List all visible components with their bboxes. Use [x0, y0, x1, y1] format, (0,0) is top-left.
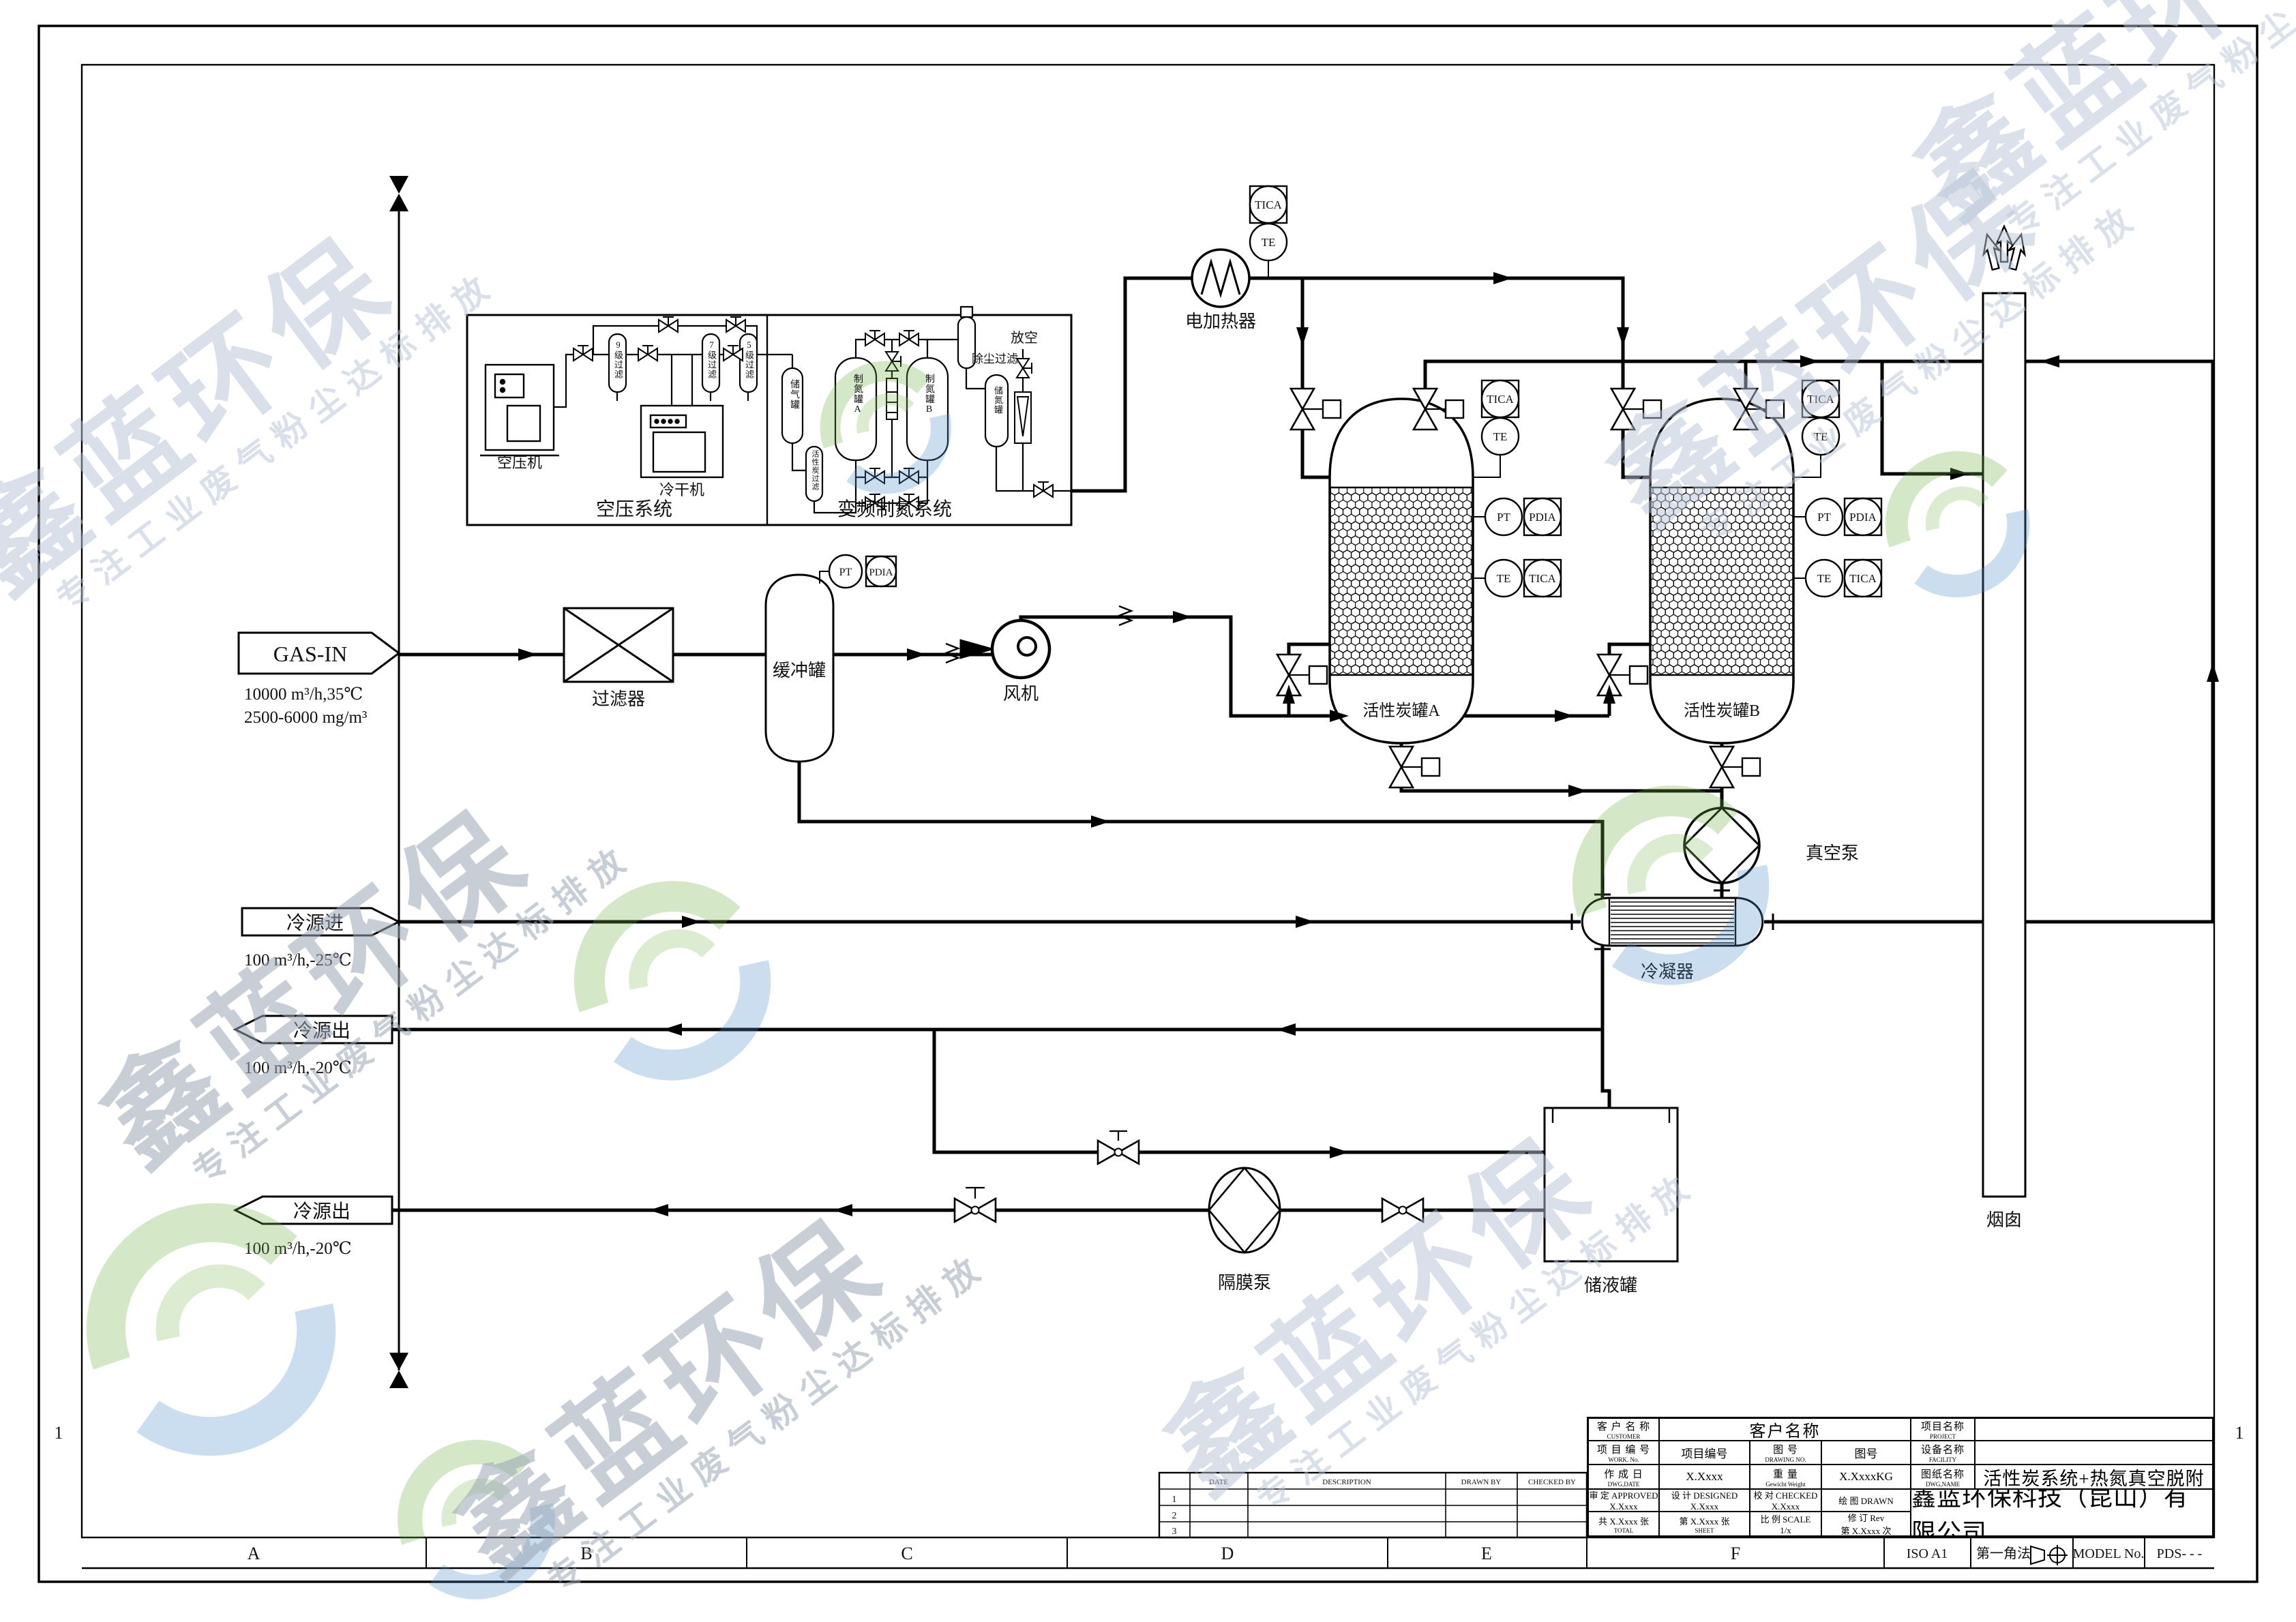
model-no-value: PDS- - -: [2157, 1546, 2203, 1561]
liquid-tank-label: 储液罐: [1584, 1276, 1637, 1295]
n2a-label: 制氮罐A: [850, 374, 864, 415]
stream-labels: GAS-IN 10000 m³/h,35℃ 2500-6000 mg/m³ 冷源…: [235, 633, 399, 1258]
rev-row-2: 2: [1172, 1511, 1177, 1521]
pid-diagram: A B C D E F 1 1 ISO A1 第一角法 MODEL No. PD…: [0, 0, 2296, 1622]
dust-filter-cap: [961, 307, 972, 317]
tank-a-te-top: TE: [1493, 430, 1508, 443]
grid-col-c: C: [901, 1544, 912, 1563]
fan-label: 风机: [1003, 684, 1039, 704]
buffer-label: 缓冲罐: [773, 661, 826, 680]
n2-buffer-label: 储氮罐: [992, 386, 1004, 415]
first-angle-projection-icon: [2031, 1545, 2068, 1565]
stack-label: 烟囱: [1986, 1210, 2022, 1230]
filter9-label: 9级过滤: [612, 340, 625, 379]
tb-company: 鑫蓝环保科技（昆山）有限公司: [1911, 1490, 2212, 1535]
tb-dwgname-value: 活性炭系统+热氮真空脱附: [1976, 1465, 2212, 1490]
tb-project-label: 项目名称PROJECT: [1911, 1419, 1976, 1441]
air-system-label: 空压系统: [596, 498, 672, 520]
tank-a-tica-mid: TICA: [1529, 572, 1556, 585]
tb-dwgno-value: 图号: [1822, 1441, 1911, 1465]
tb-customer-label: 客 户 名 称CUSTOMER: [1589, 1419, 1660, 1441]
tank-b-tica-top: TICA: [1807, 393, 1834, 406]
gas-in-spec-1: 10000 m³/h,35℃: [244, 685, 363, 704]
tank-b-pt: PT: [1817, 511, 1831, 524]
filter-label: 过滤器: [592, 689, 645, 709]
tank-b-label: 活性炭罐B: [1684, 702, 1760, 720]
diaphragm-pump: [1209, 1168, 1280, 1252]
pid-drawing-sheet: A B C D E F 1 1 ISO A1 第一角法 MODEL No. PD…: [0, 0, 2296, 1622]
tb-work-label: 项 目 编 号WORK. No.: [1589, 1441, 1660, 1465]
grid-col-b: B: [580, 1544, 592, 1563]
tank-a-te-mid: TE: [1497, 572, 1511, 585]
air-tank-label: 储气罐: [787, 379, 801, 410]
tb-dwgno-label: 图 号DRAWING NO.: [1750, 1441, 1822, 1465]
cold-out2-label: 冷源出: [293, 1201, 351, 1222]
tb-weight-value: X.XxxxKG: [1822, 1465, 1911, 1490]
refrigerated-dryer: [641, 406, 723, 477]
gas-in-label: GAS-IN: [273, 642, 347, 666]
buffer-pdia: PDIA: [869, 567, 893, 578]
gas-in-spec-2: 2500-6000 mg/m³: [244, 708, 368, 727]
tb-dwgname-label: 图纸名称DWG,NAME: [1911, 1465, 1976, 1490]
buffer-pt: PT: [839, 567, 852, 578]
model-no-label: MODEL No.: [2073, 1546, 2145, 1561]
cold-in-spec: 100 m³/h,-25℃: [244, 951, 352, 970]
revision-table-text: DATE DESCRIPTION DRAWN BY CHECKED BY 1 2…: [1172, 1478, 1577, 1537]
tank-b-tica-mid: TICA: [1849, 572, 1877, 585]
tb-customer-value: 客户名称: [1660, 1419, 1911, 1441]
tb-date-value: X.Xxxx: [1660, 1465, 1750, 1490]
grid-col-f: F: [1731, 1544, 1740, 1563]
rev-header-drawnby: DRAWN BY: [1461, 1478, 1502, 1486]
heater-label: 电加热器: [1185, 312, 1256, 331]
grid-row-1-left: 1: [55, 1423, 63, 1443]
tank-b-te-top: TE: [1814, 430, 1828, 443]
rev-header-date: DATE: [1209, 1478, 1228, 1486]
tank-a-pt: PT: [1497, 511, 1510, 524]
n2-system-label: 变频制氮系统: [837, 498, 952, 520]
tb-scale: 比 例 SCALE1/x: [1750, 1512, 1822, 1535]
iso-size: ISO A1: [1907, 1546, 1948, 1561]
grid-col-a: A: [248, 1544, 260, 1563]
cold-in-label: 冷源进: [286, 912, 344, 934]
exhaust-stack: [1979, 226, 2029, 1197]
dust-filter-label: 除尘过滤: [972, 352, 1018, 365]
vent-label: 放空: [1011, 330, 1038, 346]
electric-heater: [1192, 250, 1249, 307]
air-compressor: [480, 365, 559, 455]
tb-facility-value: [1976, 1441, 2212, 1465]
drawing-frame: [39, 26, 2257, 1582]
vacuum-pump-label: 真空泵: [1806, 843, 1859, 863]
frame-info: ISO A1 第一角法 MODEL No. PDS- - -: [1907, 1545, 2203, 1565]
tank-b-pdia: PDIA: [1849, 511, 1877, 524]
tb-weight-label: 重 量Gewicht Weight: [1750, 1465, 1822, 1490]
tb-rev: 修 订 Rev第 X.Xxxx 次: [1822, 1512, 1911, 1535]
tb-approved: 审 定 APPROVEDX.Xxxx: [1589, 1490, 1660, 1512]
tank-b-te-mid: TE: [1817, 572, 1832, 585]
diaphragm-pump-label: 隔膜泵: [1218, 1273, 1271, 1293]
cold-out1-spec: 100 m³/h,-20℃: [244, 1059, 352, 1077]
tb-total: 共 X.Xxxx 张TOTAL: [1589, 1512, 1660, 1535]
cold-out1-label: 冷源出: [293, 1020, 351, 1042]
tb-sheet: 第 X.Xxxx 张SHEET: [1660, 1512, 1750, 1535]
rev-header-description: DESCRIPTION: [1322, 1478, 1371, 1486]
carbon-filter-label: 活性炭过滤: [809, 450, 820, 491]
tb-facility-label: 设备名称FACILITY: [1911, 1441, 1976, 1465]
projection-method: 第一角法: [1976, 1546, 2031, 1561]
grid-col-e: E: [1481, 1544, 1492, 1563]
tb-project-value: [1976, 1419, 2212, 1441]
filter7-label: 7级过滤: [705, 340, 718, 379]
heater-tica-tag: TICA: [1255, 198, 1282, 211]
liquid-storage-tank: [1545, 1108, 1678, 1261]
n2b-label: 制氮罐B: [922, 374, 936, 415]
dryer-label: 冷干机: [659, 481, 704, 498]
tb-work-value: 项目编号: [1660, 1441, 1750, 1465]
carbon-tank-b: [1650, 399, 1793, 743]
tb-drawn: 绘 图 DRAWN: [1822, 1490, 1911, 1512]
grid-col-d: D: [1221, 1544, 1234, 1563]
inlet-filter: [564, 608, 673, 682]
tb-designed: 设 计 DESIGNEDX.Xxxx: [1660, 1490, 1750, 1512]
air-nitrogen-system: [467, 307, 1071, 525]
title-block: 客 户 名 称CUSTOMER 客户名称 项目名称PROJECT 项 目 编 号…: [1587, 1417, 2214, 1537]
carbon-tank-a: [1330, 399, 1473, 743]
rev-row-3: 3: [1172, 1527, 1177, 1537]
grid-row-1-right: 1: [2235, 1423, 2244, 1443]
heater-te-tag: TE: [1262, 236, 1276, 249]
compressor-label: 空压机: [497, 454, 542, 471]
rev-header-checkedby: CHECKED BY: [1528, 1478, 1576, 1486]
tank-a-pdia: PDIA: [1529, 511, 1556, 524]
tank-a-tica-top: TICA: [1487, 393, 1514, 406]
tank-a-label: 活性炭罐A: [1362, 702, 1440, 720]
rev-row-1: 1: [1172, 1495, 1177, 1505]
filter5-label: 5级过滤: [743, 340, 756, 379]
tb-date-label: 作 成 日DWG,DATE: [1589, 1465, 1660, 1490]
tb-checked: 校 对 CHECKEDX.Xxxx: [1750, 1490, 1822, 1512]
